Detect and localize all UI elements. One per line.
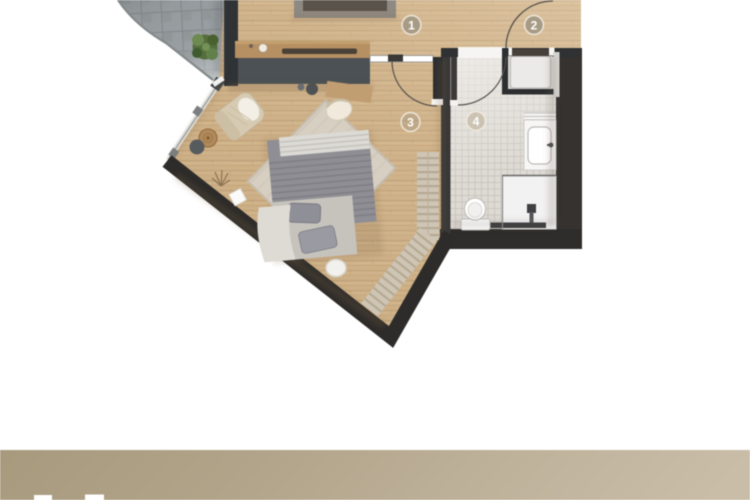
svg-text:3: 3 [407, 115, 414, 129]
svg-text:1: 1 [408, 18, 415, 32]
svg-text:4: 4 [473, 114, 480, 128]
svg-text:2: 2 [531, 18, 538, 32]
